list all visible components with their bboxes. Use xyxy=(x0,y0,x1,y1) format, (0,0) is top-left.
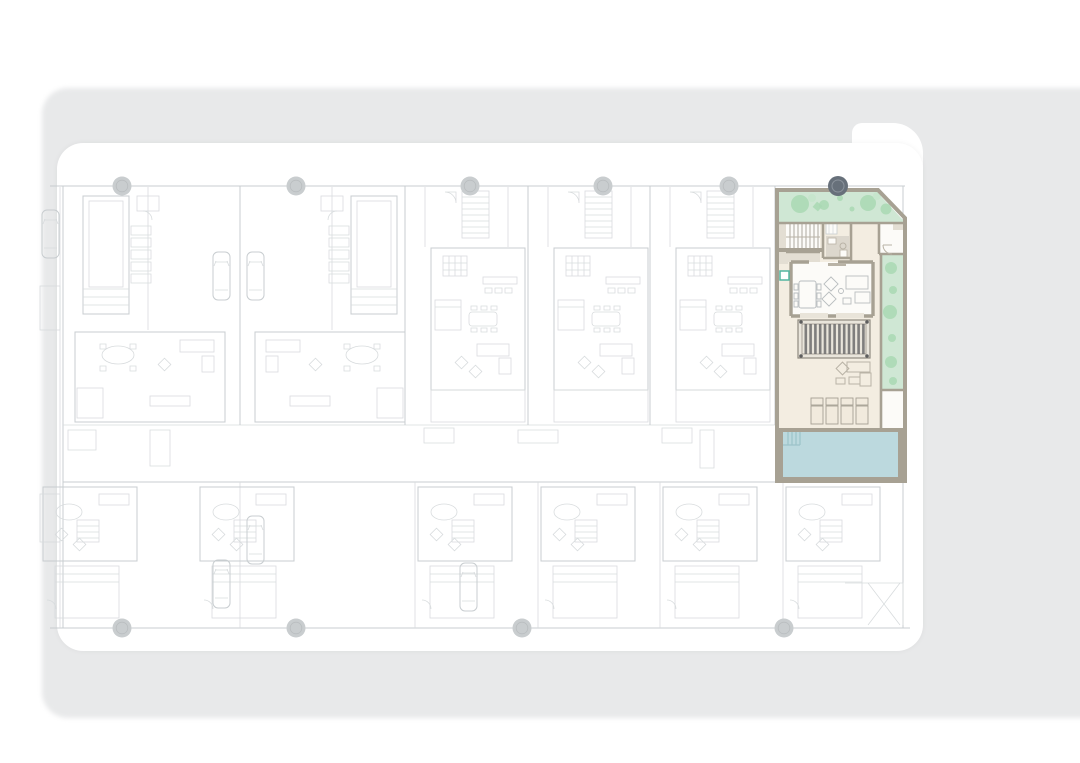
unit-pool xyxy=(779,428,905,481)
unit-patio xyxy=(881,390,903,430)
grid-bubble xyxy=(594,177,613,196)
grid-bubble xyxy=(775,619,794,638)
unit-entry xyxy=(879,223,903,254)
grid-bubble xyxy=(513,619,532,638)
highlighted-unit[interactable] xyxy=(777,176,905,481)
grid-bubble xyxy=(113,177,132,196)
grid-bubble xyxy=(287,177,306,196)
grid-bubble xyxy=(287,619,306,638)
page xyxy=(0,0,1080,763)
ac-unit-marker xyxy=(780,271,789,280)
grid-bubble xyxy=(720,177,739,196)
grid-bubbles xyxy=(113,177,794,638)
grid-bubble xyxy=(461,177,480,196)
unit-pergola xyxy=(798,320,870,358)
grid-bubble xyxy=(113,619,132,638)
grid-bubble-highlight xyxy=(828,176,848,196)
unit-living-room xyxy=(791,262,873,318)
site-plan xyxy=(0,0,1080,763)
unit-side-garden xyxy=(881,254,903,390)
unit-stair xyxy=(779,222,822,264)
